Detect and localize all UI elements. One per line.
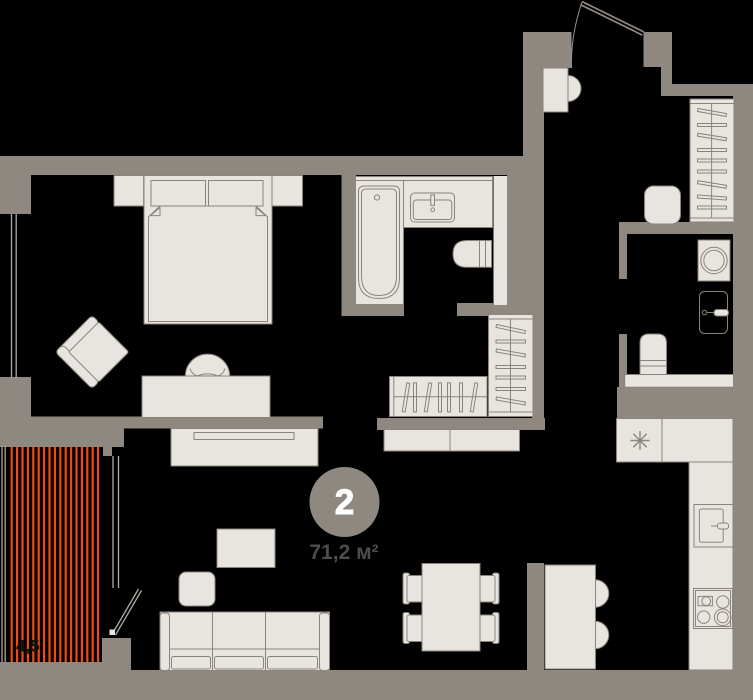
svg-text:2: 2 bbox=[335, 483, 354, 522]
svg-text:4,5: 4,5 bbox=[16, 637, 40, 656]
svg-text:71,2 м²: 71,2 м² bbox=[309, 541, 378, 564]
